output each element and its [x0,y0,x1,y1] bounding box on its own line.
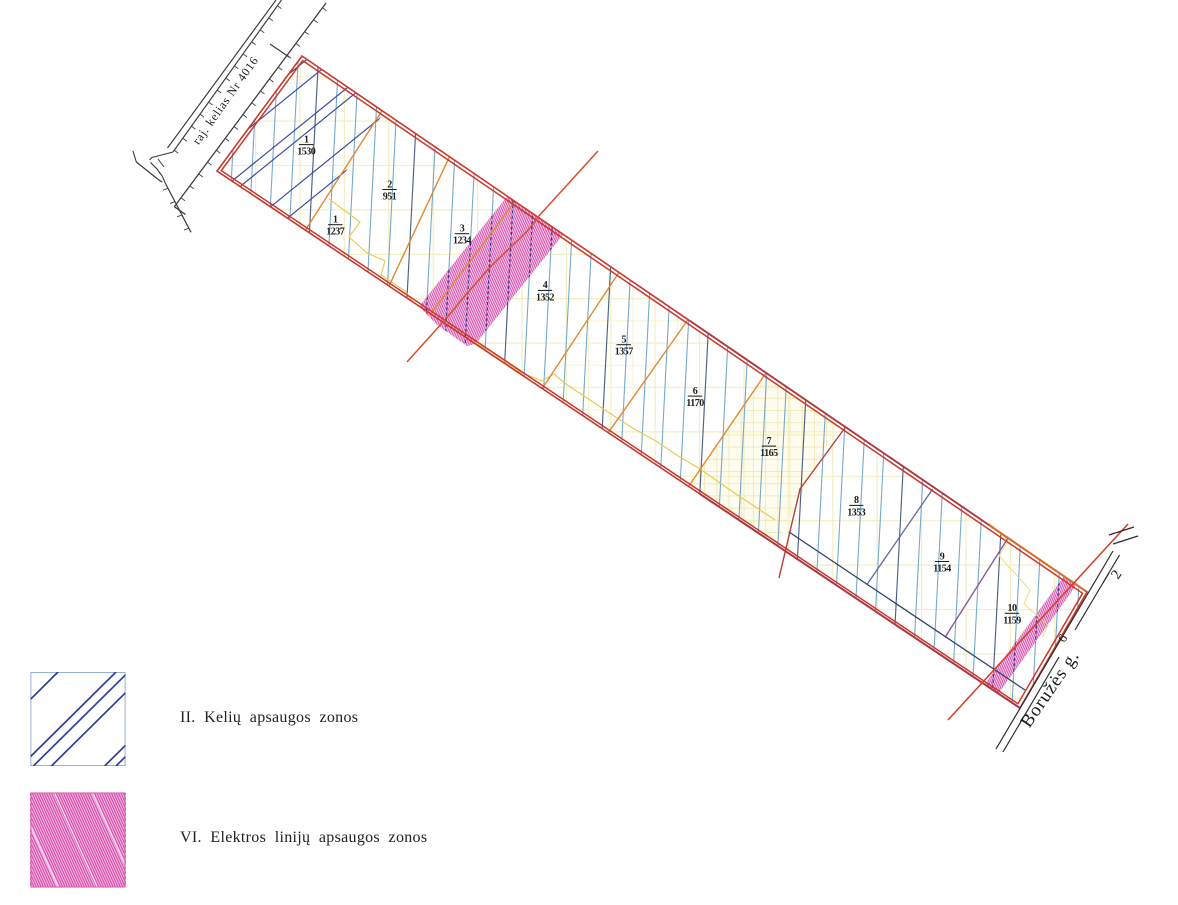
svg-text:1170: 1170 [686,398,704,409]
svg-text:1: 1 [333,215,338,226]
svg-text:951: 951 [383,192,397,203]
svg-text:1353: 1353 [847,507,866,518]
svg-text:7: 7 [767,436,772,447]
svg-text:2: 2 [1108,567,1125,582]
svg-text:1237: 1237 [326,227,345,238]
svg-text:9: 9 [940,551,945,562]
svg-text:VI. Elektros linijų apsaugo: VI. Elektros linijų apsaugos zonos [180,829,427,846]
svg-text:raj. kelias Nr 4016: raj. kelias Nr 4016 [190,54,262,147]
svg-text:1154: 1154 [933,564,951,575]
svg-text:1159: 1159 [1003,615,1021,626]
svg-text:1352: 1352 [536,292,555,303]
svg-text:1530: 1530 [297,147,316,158]
svg-text:4: 4 [543,280,548,291]
svg-text:10: 10 [1008,603,1018,614]
svg-text:3: 3 [460,224,465,235]
svg-text:1357: 1357 [615,347,634,358]
svg-text:5: 5 [621,335,626,346]
svg-text:2: 2 [387,179,392,190]
svg-text:1234: 1234 [453,236,472,247]
svg-text:8: 8 [854,495,859,506]
svg-text:1: 1 [304,134,309,145]
svg-text:6: 6 [693,386,698,397]
svg-text:II. Kelių apsaugos zonos: II. Kelių apsaugos zonos [180,709,358,726]
svg-text:1165: 1165 [760,448,778,459]
